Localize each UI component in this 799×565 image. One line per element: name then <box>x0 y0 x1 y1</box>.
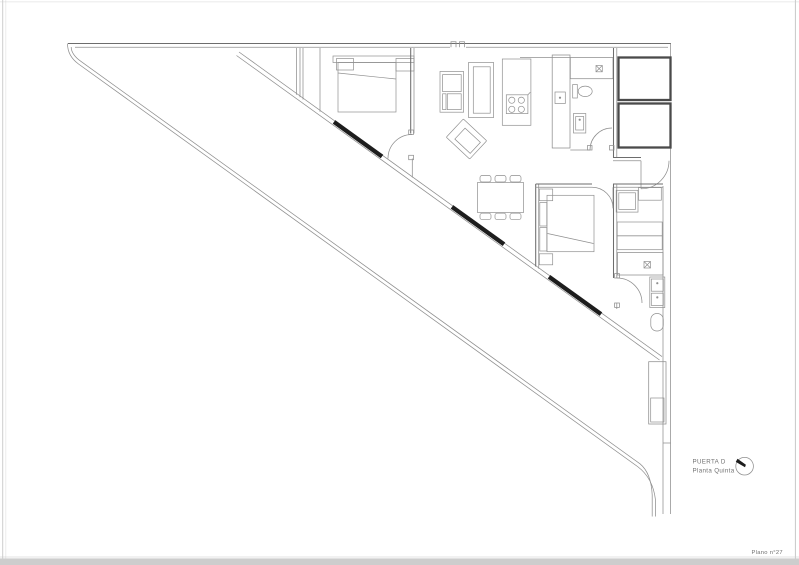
dining-chair <box>480 176 491 183</box>
nightstand <box>539 189 552 201</box>
hall-closets <box>616 188 662 250</box>
burner <box>509 106 515 112</box>
title-block: PUERTA D Planta Quinta <box>693 457 754 475</box>
kitchen-island <box>502 59 531 125</box>
wall-break-mark <box>451 42 456 48</box>
wall-break-mark <box>460 42 465 48</box>
pillow <box>540 228 547 252</box>
entry-door-arc <box>641 161 669 189</box>
facade-mullion <box>334 122 382 157</box>
core-shaft <box>619 104 671 148</box>
bed-2 <box>539 189 594 265</box>
sheet-fold <box>338 73 396 79</box>
door-arc-bathroom-1 <box>590 128 612 150</box>
core-shaft <box>619 58 671 101</box>
nightstand <box>539 254 552 265</box>
nightstand <box>396 59 414 72</box>
bedroom-1-east-wall <box>409 48 414 178</box>
vanity-double-sink <box>650 277 665 308</box>
balcony-east-edge <box>663 148 671 514</box>
glazed-facade <box>237 52 663 360</box>
sofa <box>469 62 494 117</box>
shower-1 <box>570 58 613 79</box>
armchair-unit <box>440 72 464 113</box>
burner <box>518 97 524 103</box>
living-room <box>440 62 524 219</box>
terrace-boundary <box>68 44 656 517</box>
lounge-chair <box>446 119 486 159</box>
shower-2 <box>618 253 664 276</box>
facade-mullion <box>549 277 601 314</box>
door-label: PUERTA D <box>693 459 726 466</box>
bathroom-1 <box>570 48 617 158</box>
bathroom-1-wall <box>570 48 617 158</box>
dining-chair <box>510 213 521 220</box>
north-arrow-icon <box>736 457 754 475</box>
kitchen-wall-column <box>552 55 570 148</box>
dining-chair <box>510 176 521 183</box>
north-wall <box>68 42 671 58</box>
burner <box>509 97 515 103</box>
dining-chair <box>495 176 506 183</box>
toilet-1 <box>573 85 593 99</box>
sheet-number: Plano n°27 <box>752 550 783 556</box>
planter <box>649 362 666 424</box>
pillow <box>337 59 354 71</box>
dining-set <box>478 176 524 220</box>
sink-1 <box>574 114 586 134</box>
door-arc-bedroom-2 <box>592 187 613 208</box>
dining-chair <box>480 213 491 220</box>
page-edges <box>0 0 799 565</box>
door-arc-bedroom-1 <box>388 135 412 159</box>
sheet-fold <box>548 234 594 244</box>
toilet-2 <box>651 314 664 332</box>
dining-table <box>478 183 524 213</box>
drawing-sheet: PUERTA D Planta Quinta Plano n°27 <box>0 0 799 565</box>
pillow <box>540 203 547 227</box>
bed-1 <box>333 56 414 112</box>
stair-core <box>619 58 671 148</box>
kitchen <box>502 55 570 148</box>
floor-label: Planta Quinta <box>693 468 735 475</box>
bathroom-2 <box>615 253 665 332</box>
bedroom-1 <box>297 48 415 178</box>
door-arc-bathroom-2 <box>617 278 642 303</box>
dining-chair <box>495 213 506 220</box>
burner <box>518 106 524 112</box>
floor-plan: PUERTA D Planta Quinta Plano n°27 <box>0 0 799 565</box>
